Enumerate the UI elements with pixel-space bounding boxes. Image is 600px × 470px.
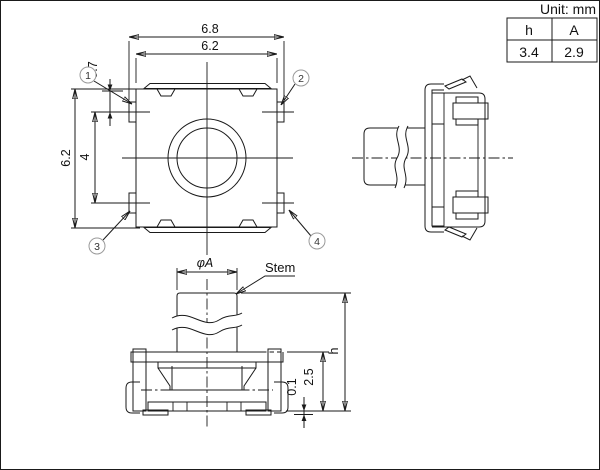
callout-1: 1	[80, 67, 132, 104]
side-top-tab	[445, 79, 466, 89]
unit-note: Unit: mm	[540, 1, 596, 17]
callout-1-leader	[94, 81, 132, 104]
side-stem-outline	[364, 128, 425, 185]
dim-arrow-standoff-top	[302, 405, 307, 412]
side-bottom-tab-tip	[462, 228, 477, 240]
front-view: φA Stem h 2.5 0.1	[126, 256, 351, 428]
dim-arrow-standoff-bottom	[302, 415, 307, 422]
side-terminal-lower	[453, 197, 488, 213]
stem-label: Stem	[265, 260, 295, 275]
callout-4-num: 4	[314, 236, 320, 248]
callout-2-leader	[281, 84, 295, 105]
top-view: 6.8 6.2 6.2 4 0.7 1 2 3	[59, 22, 325, 255]
callout-3-num: 3	[94, 241, 100, 253]
dim-text-stem-diameter: φA	[197, 256, 214, 270]
top-view-cover-band-bottom	[144, 228, 271, 233]
terminal-centerlines	[91, 112, 294, 203]
side-bottom-tab	[445, 227, 466, 237]
dim-arrow-offset-bottom	[108, 112, 113, 119]
dim-text-base-height: 2.5	[302, 368, 316, 385]
side-terminal-upper	[453, 103, 488, 119]
spec-val-h: 3.4	[519, 44, 539, 60]
side-terminal-upper-fold-top	[456, 97, 478, 103]
dim-text-body-height: 6.2	[59, 149, 73, 166]
spec-col-a: A	[569, 22, 579, 38]
callout-3-leader	[103, 211, 130, 240]
top-view-tab-bottom-left	[157, 220, 175, 227]
spec-val-a: 2.9	[564, 44, 584, 60]
dim-text-body-width: 6.2	[201, 39, 218, 53]
callout-2: 2	[281, 70, 309, 105]
top-view-tab-top-left	[157, 89, 175, 96]
dim-text-outer-width: 6.8	[201, 22, 218, 36]
dim-text-total-height: h	[327, 347, 341, 354]
callout-4-leader	[289, 210, 311, 236]
side-terminal-lower-fold-bottom	[456, 213, 478, 219]
spec-col-h: h	[525, 22, 533, 38]
side-terminal-lower-fold-top	[456, 191, 478, 197]
side-top-tab-tip	[462, 76, 477, 88]
drawing-sheet: Unit: mm h A 3.4 2.9 6.8	[0, 0, 600, 470]
side-body-details	[432, 93, 478, 227]
callout-3: 3	[89, 211, 130, 254]
top-view-tab-bottom-right	[239, 220, 257, 227]
callout-2-num: 2	[298, 73, 304, 85]
technical-drawing-canvas: Unit: mm h A 3.4 2.9 6.8	[0, 0, 600, 470]
callout-1-num: 1	[85, 70, 91, 82]
dim-text-standoff: 0.1	[285, 378, 299, 395]
side-terminal-upper-fold-bottom	[456, 119, 478, 125]
front-leg-left	[133, 349, 146, 411]
top-view-centerlines	[122, 62, 293, 255]
dim-ext-body-width	[136, 58, 277, 83]
stem-label-leader	[236, 276, 295, 294]
top-view-tab-top-right	[239, 89, 257, 96]
front-leg-right	[268, 349, 281, 411]
top-view-cover-band-top	[144, 84, 271, 89]
callout-4: 4	[289, 210, 325, 249]
spec-table: Unit: mm h A 3.4 2.9	[507, 1, 597, 62]
dim-text-terminal-pitch: 4	[78, 153, 92, 160]
side-view	[352, 76, 513, 240]
